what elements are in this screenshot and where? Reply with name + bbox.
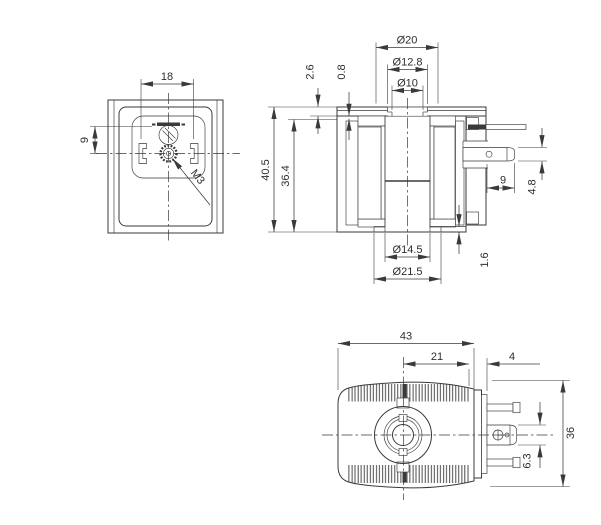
dim-front-height: 9 [79, 137, 91, 143]
dim-terminal-width: 4.8 [527, 179, 539, 194]
dim-pin-width: 6.3 [522, 453, 534, 468]
dim-bore-dia: Ø14.5 [393, 244, 423, 256]
dim-inner-dia: Ø10 [397, 78, 418, 90]
solenoid-coil-drawing: 18 9 M3 [0, 0, 601, 525]
dim-lip-thickness: 0.8 [336, 64, 348, 79]
dim-terminal-length: 9 [500, 175, 506, 187]
connector-housing [466, 116, 486, 225]
dim-flange-thickness: 2.6 [305, 64, 317, 79]
dim-total-length: 43 [400, 331, 412, 343]
section-view: Ø20 Ø12.8 Ø10 2.6 0.8 40.5 36.4 Ø14.5 Ø2… [260, 35, 547, 285]
thread-label: M3 [188, 167, 207, 186]
front-view: 18 9 M3 [79, 71, 240, 243]
dim-body-height: 36.4 [280, 165, 292, 186]
dim-base-lip: 1.6 [479, 252, 491, 267]
dim-total-height: 40.5 [260, 159, 272, 180]
ground-tab [486, 125, 526, 130]
ground-tab-root [468, 125, 486, 130]
dim-center-to-edge: 21 [431, 351, 443, 363]
dim-mid-dia: Ø12.8 [393, 57, 423, 69]
connector-collar [474, 390, 482, 478]
dim-collar-width: 4 [509, 351, 515, 363]
dim-outer-dia: Ø20 [397, 35, 418, 47]
side-view: 43 21 4 36 6.3 [322, 331, 577, 501]
dim-collar-dia: Ø21.5 [393, 266, 423, 278]
technical-drawing-canvas: 18 9 M3 [0, 0, 601, 525]
dim-front-width: 18 [161, 71, 173, 83]
terminal-hole [486, 151, 492, 157]
dim-side-height: 36 [565, 427, 577, 439]
